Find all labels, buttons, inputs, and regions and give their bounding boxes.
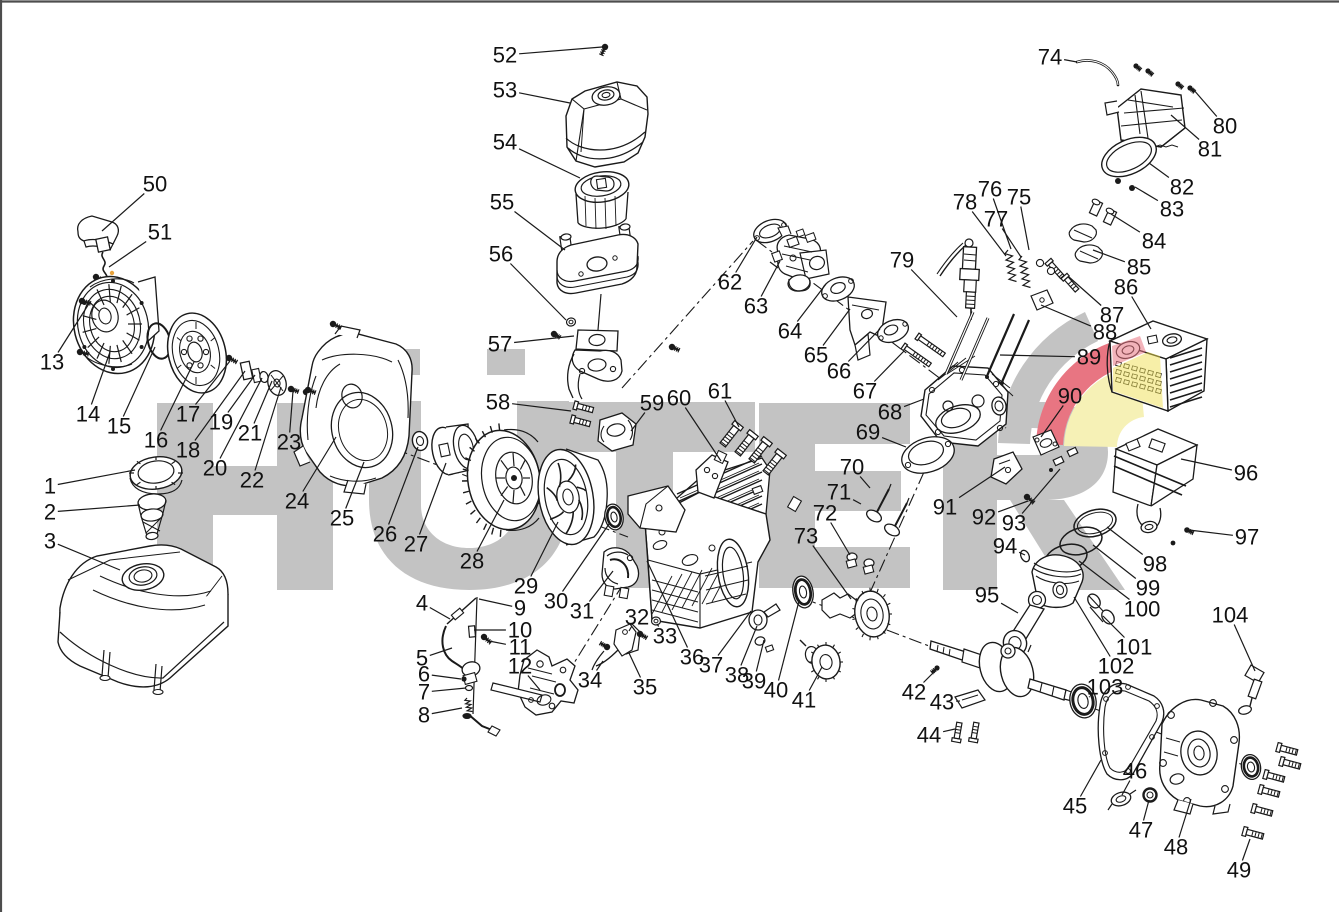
svg-text:24: 24	[285, 489, 309, 514]
svg-text:30: 30	[544, 589, 568, 614]
svg-text:64: 64	[778, 319, 802, 344]
svg-text:41: 41	[792, 688, 816, 713]
svg-text:54: 54	[493, 130, 517, 155]
svg-text:4: 4	[416, 591, 428, 616]
svg-text:23: 23	[277, 430, 301, 455]
svg-text:32: 32	[625, 605, 649, 630]
svg-text:95: 95	[975, 583, 999, 608]
svg-text:94: 94	[993, 534, 1017, 559]
svg-text:1: 1	[44, 474, 56, 499]
svg-text:37: 37	[699, 653, 723, 678]
svg-text:48: 48	[1164, 835, 1188, 860]
svg-text:104: 104	[1212, 603, 1249, 628]
svg-text:63: 63	[744, 294, 768, 319]
svg-text:83: 83	[1160, 197, 1184, 222]
svg-text:72: 72	[813, 501, 837, 526]
svg-text:44: 44	[917, 723, 941, 748]
svg-text:57: 57	[488, 332, 512, 357]
svg-text:15: 15	[107, 414, 131, 439]
svg-text:65: 65	[804, 343, 828, 368]
svg-text:103: 103	[1087, 675, 1124, 700]
svg-text:21: 21	[238, 421, 262, 446]
svg-text:49: 49	[1227, 858, 1251, 883]
svg-text:96: 96	[1234, 461, 1258, 486]
svg-text:90: 90	[1058, 384, 1082, 409]
svg-text:66: 66	[827, 359, 851, 384]
svg-text:81: 81	[1198, 137, 1222, 162]
svg-text:18: 18	[176, 438, 200, 463]
svg-text:3: 3	[44, 529, 56, 554]
svg-text:89: 89	[1077, 345, 1101, 370]
svg-text:33: 33	[653, 624, 677, 649]
svg-text:75: 75	[1007, 185, 1031, 210]
svg-text:68: 68	[878, 400, 902, 425]
svg-text:13: 13	[40, 350, 64, 375]
svg-text:40: 40	[764, 678, 788, 703]
svg-text:59: 59	[640, 391, 664, 416]
svg-text:60: 60	[667, 386, 691, 411]
svg-text:17: 17	[176, 402, 200, 427]
svg-text:78: 78	[953, 190, 977, 215]
svg-text:39: 39	[742, 669, 766, 694]
svg-text:46: 46	[1123, 759, 1147, 784]
svg-text:73: 73	[794, 524, 818, 549]
svg-text:88: 88	[1093, 320, 1117, 345]
svg-text:45: 45	[1063, 794, 1087, 819]
svg-text:53: 53	[493, 78, 517, 103]
svg-text:80: 80	[1213, 114, 1237, 139]
svg-text:43: 43	[930, 690, 954, 715]
svg-text:27: 27	[404, 532, 428, 557]
svg-text:100: 100	[1124, 597, 1161, 622]
svg-text:31: 31	[570, 599, 594, 624]
svg-text:74: 74	[1038, 45, 1062, 70]
svg-text:22: 22	[240, 468, 264, 493]
svg-text:26: 26	[373, 522, 397, 547]
svg-text:86: 86	[1114, 275, 1138, 300]
svg-text:55: 55	[490, 190, 514, 215]
svg-text:91: 91	[933, 495, 957, 520]
svg-text:52: 52	[493, 43, 517, 68]
svg-text:47: 47	[1129, 818, 1153, 843]
svg-text:51: 51	[148, 220, 172, 245]
svg-text:35: 35	[633, 675, 657, 700]
svg-text:2: 2	[44, 500, 56, 525]
svg-text:77: 77	[984, 207, 1008, 232]
svg-text:79: 79	[890, 248, 914, 273]
svg-text:50: 50	[143, 172, 167, 197]
svg-text:7: 7	[418, 680, 430, 705]
svg-text:29: 29	[514, 574, 538, 599]
svg-text:20: 20	[203, 456, 227, 481]
svg-text:8: 8	[418, 703, 430, 728]
svg-text:28: 28	[460, 549, 484, 574]
svg-text:76: 76	[978, 177, 1002, 202]
svg-text:97: 97	[1235, 525, 1259, 550]
svg-text:92: 92	[972, 505, 996, 530]
svg-text:62: 62	[718, 270, 742, 295]
svg-text:12: 12	[508, 654, 532, 679]
svg-text:93: 93	[1002, 511, 1026, 536]
svg-text:69: 69	[856, 420, 880, 445]
svg-text:19: 19	[209, 410, 233, 435]
svg-text:67: 67	[853, 379, 877, 404]
svg-text:25: 25	[330, 506, 354, 531]
svg-text:84: 84	[1142, 229, 1166, 254]
svg-text:70: 70	[840, 455, 864, 480]
svg-text:56: 56	[489, 242, 513, 267]
svg-text:98: 98	[1143, 552, 1167, 577]
svg-text:58: 58	[486, 390, 510, 415]
svg-text:42: 42	[902, 680, 926, 705]
svg-text:34: 34	[578, 668, 602, 693]
svg-text:16: 16	[144, 428, 168, 453]
svg-text:14: 14	[76, 402, 100, 427]
svg-text:61: 61	[708, 379, 732, 404]
